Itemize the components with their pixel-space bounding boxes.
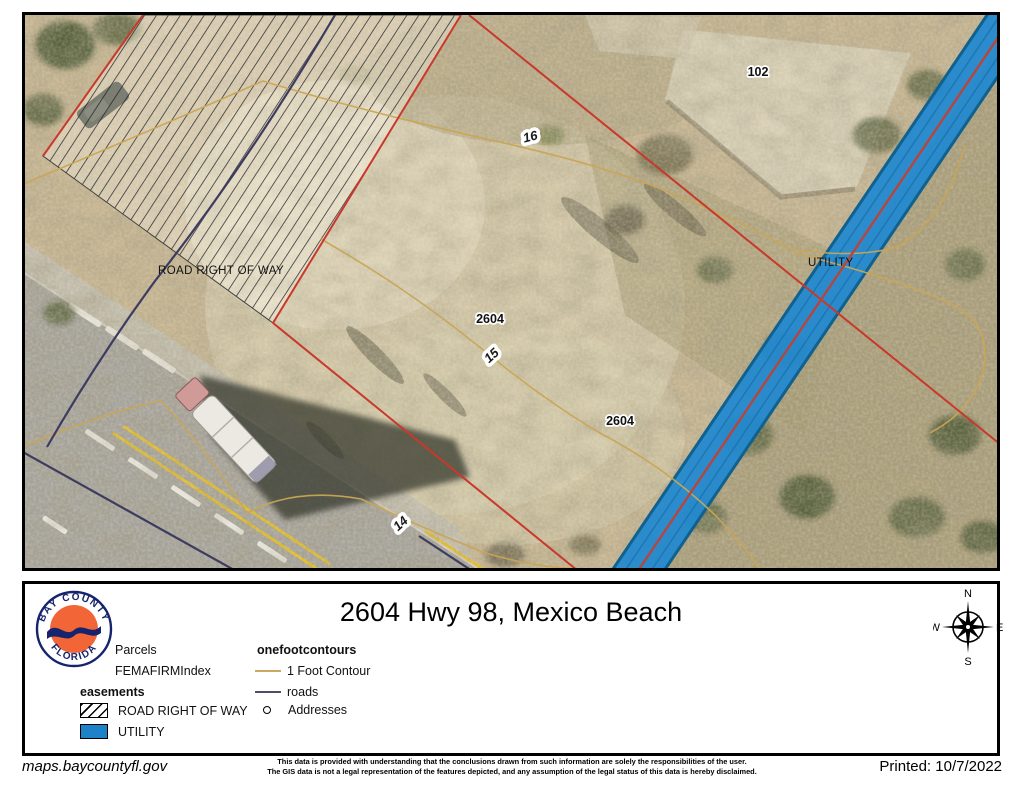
road-right-of-way-label: ROAD RIGHT OF WAY bbox=[158, 265, 284, 277]
compass-s: S bbox=[964, 656, 971, 668]
footer-bar: maps.baycountyfl.gov This data is provid… bbox=[22, 757, 1002, 785]
parcels-label: Parcels bbox=[115, 643, 157, 657]
legend-item-parcels: Parcels bbox=[115, 643, 157, 657]
print-page: ROAD RIGHT OF WAY UTILITY 102 2604 2604 … bbox=[0, 0, 1024, 792]
address-marker-icon bbox=[263, 706, 271, 714]
printed-date: Printed: 10/7/2022 bbox=[879, 758, 1002, 775]
roads-label: roads bbox=[287, 685, 318, 699]
site-url: maps.baycountyfl.gov bbox=[22, 758, 167, 775]
utility-label: UTILITY bbox=[808, 257, 854, 269]
map-viewport: ROAD RIGHT OF WAY UTILITY 102 2604 2604 … bbox=[22, 12, 1000, 571]
femafirm-label: FEMAFIRMIndex bbox=[115, 664, 211, 678]
legend-item-utility: UTILITY bbox=[80, 724, 165, 739]
contour-line-swatch bbox=[255, 670, 281, 672]
onefootcontours-label: onefootcontours bbox=[257, 643, 356, 657]
page-title: 2604 Hwy 98, Mexico Beach bbox=[145, 597, 877, 628]
easements-label: easements bbox=[80, 685, 145, 699]
legend-item-roads: roads bbox=[255, 685, 318, 699]
disclaimer: This data is provided with understanding… bbox=[212, 757, 812, 776]
compass-e: E bbox=[996, 622, 1003, 634]
legend-item-road-right-of-way: ROAD RIGHT OF WAY bbox=[80, 703, 248, 718]
compass-rose-icon: N S W E bbox=[933, 586, 1003, 668]
legend-group-onefootcontours: onefootcontours bbox=[257, 643, 356, 657]
bay-county-logo: BAY COUNTY FLORIDA bbox=[35, 590, 113, 668]
map-canvas: ROAD RIGHT OF WAY UTILITY 102 2604 2604 … bbox=[25, 15, 997, 568]
utility-swatch bbox=[80, 724, 108, 739]
legend-item-one-foot-contour: 1 Foot Contour bbox=[255, 664, 370, 678]
legend-item-addresses: Addresses bbox=[263, 703, 347, 717]
one-foot-contour-label: 1 Foot Contour bbox=[287, 664, 370, 678]
road-right-of-way-legend-label: ROAD RIGHT OF WAY bbox=[118, 704, 248, 718]
roads-line-swatch bbox=[255, 691, 281, 693]
road-right-of-way-swatch bbox=[80, 703, 108, 718]
legend-group-easements: easements bbox=[80, 685, 145, 699]
parcel-2604-upper-label: 2604 bbox=[476, 312, 504, 326]
addresses-label: Addresses bbox=[288, 703, 347, 717]
parcel-2604-lower-label: 2604 bbox=[606, 414, 634, 428]
compass-n: N bbox=[964, 588, 972, 600]
legend-panel: BAY COUNTY FLORIDA 2604 Hwy 98, Mexico B… bbox=[22, 581, 1000, 756]
compass-w: W bbox=[933, 622, 941, 634]
disclaimer-line-1: This data is provided with understanding… bbox=[212, 757, 812, 767]
legend-item-femafirm: FEMAFIRMIndex bbox=[115, 664, 211, 678]
parcel-102-label: 102 bbox=[748, 65, 769, 79]
utility-legend-label: UTILITY bbox=[118, 725, 165, 739]
disclaimer-line-2: The GIS data is not a legal representati… bbox=[212, 767, 812, 777]
